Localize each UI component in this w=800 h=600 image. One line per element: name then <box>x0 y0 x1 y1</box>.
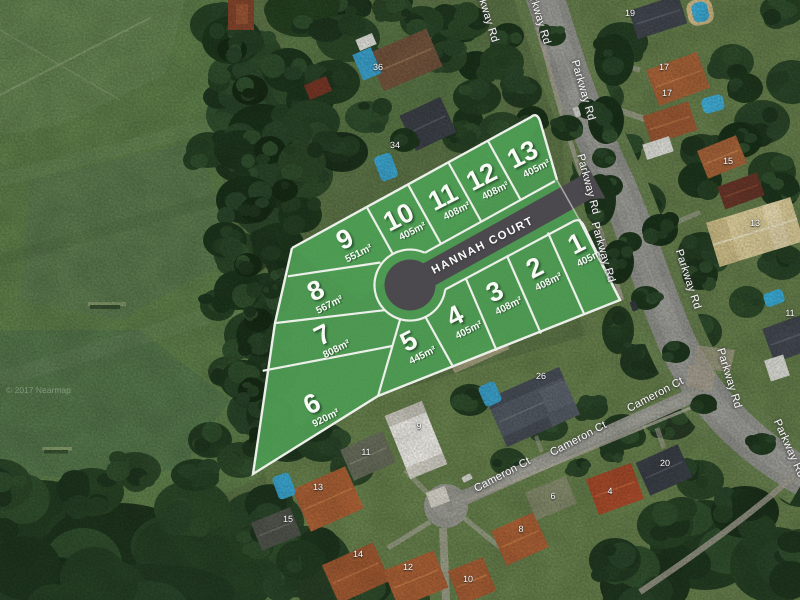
svg-text:19: 19 <box>625 8 635 18</box>
svg-text:8: 8 <box>518 524 523 534</box>
svg-text:10: 10 <box>463 574 473 584</box>
svg-text:11: 11 <box>361 447 370 457</box>
svg-text:17: 17 <box>659 62 669 72</box>
svg-text:13: 13 <box>313 482 323 492</box>
svg-text:15: 15 <box>283 514 293 524</box>
svg-text:14: 14 <box>353 549 363 559</box>
svg-text:17: 17 <box>662 88 672 98</box>
svg-text:15: 15 <box>723 156 733 166</box>
svg-text:11: 11 <box>785 308 794 318</box>
svg-text:36: 36 <box>373 62 383 72</box>
svg-text:4: 4 <box>607 486 612 496</box>
svg-text:34: 34 <box>390 140 400 150</box>
svg-text:20: 20 <box>660 458 670 468</box>
svg-text:26: 26 <box>536 371 546 381</box>
svg-text:6: 6 <box>550 491 555 501</box>
svg-text:9: 9 <box>416 421 421 431</box>
svg-text:13: 13 <box>750 218 760 228</box>
svg-text:12: 12 <box>403 562 413 572</box>
svg-text:© 2017 Nearmap: © 2017 Nearmap <box>6 385 71 395</box>
